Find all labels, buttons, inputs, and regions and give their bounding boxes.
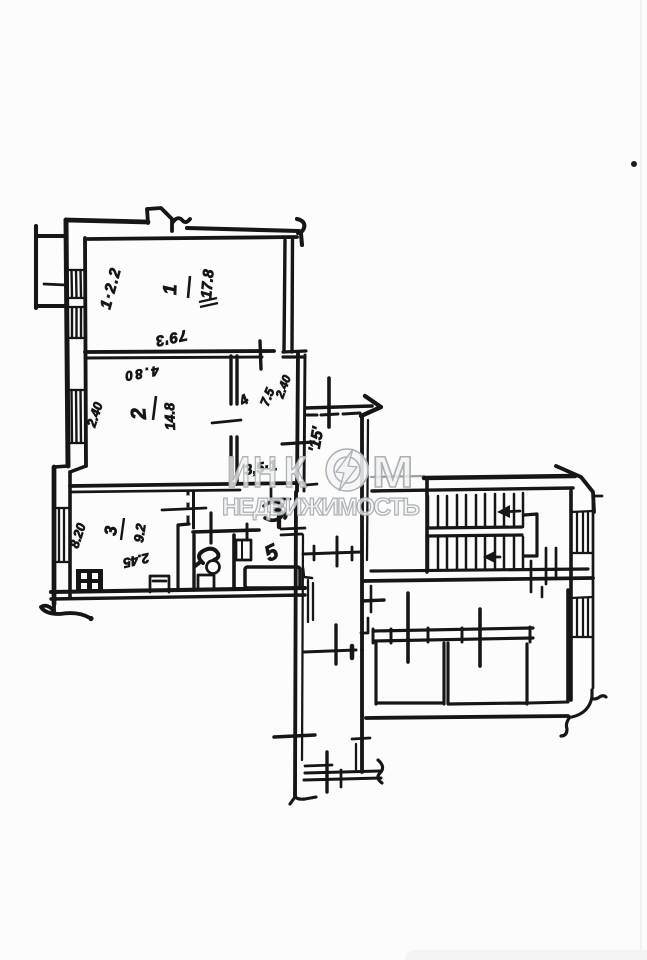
svg-text:9.2: 9.2 — [131, 522, 149, 543]
svg-text:НЕДВИЖИМОСТЬ: НЕДВИЖИМОСТЬ — [222, 494, 420, 521]
svg-text:И: И — [227, 448, 250, 497]
svg-text:17.8: 17.8 — [198, 268, 218, 299]
svg-text:М: М — [372, 448, 413, 497]
svg-text:14.8: 14.8 — [161, 402, 178, 430]
svg-text:Н: Н — [253, 448, 277, 497]
svg-text:К: К — [284, 448, 307, 497]
svg-text:1: 1 — [160, 284, 181, 295]
svg-text:2: 2 — [127, 407, 151, 422]
